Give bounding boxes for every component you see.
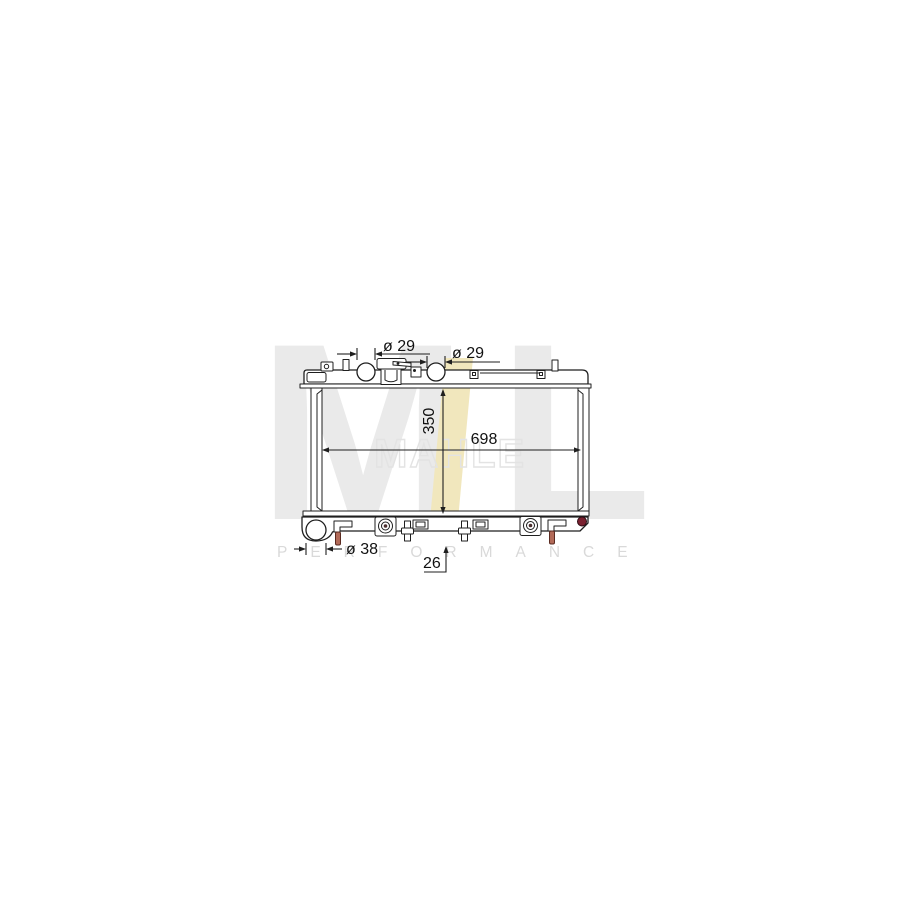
oil-cooler-fitting-1-center [384, 524, 388, 528]
bottom-flange [303, 511, 589, 516]
red-pin-right [550, 531, 555, 544]
filler-cap-lever-dot [397, 362, 400, 365]
dim-label-port-left: ø 29 [383, 338, 415, 355]
product-image: M L MAHLE PERFORMANCE [0, 0, 900, 900]
mounting-pin-top-left [343, 360, 349, 371]
hanging-pin-2-collar [459, 528, 471, 534]
watermark-wordmark: MAHLE [374, 432, 526, 476]
square-port-3 [537, 371, 545, 379]
top-tank-flange [300, 384, 591, 388]
inlet-port-left [357, 363, 375, 381]
square-port-1-dot [413, 369, 416, 372]
drain-plug [578, 517, 587, 526]
red-pin-left [336, 532, 341, 545]
square-port-1 [411, 367, 421, 377]
square-port-2 [470, 371, 478, 379]
dim-label-core-width: 698 [471, 431, 498, 448]
outlet-port [306, 520, 326, 540]
clip-bracket-2 [473, 520, 488, 529]
oil-cooler-fitting-2-center [529, 524, 533, 528]
radiator-technical-drawing: M L MAHLE PERFORMANCE [0, 0, 900, 900]
mounting-tab-left [321, 362, 333, 371]
watermark-tagline: PERFORMANCE [277, 544, 651, 561]
dim-label-core-height: 350 [421, 408, 438, 435]
mounting-pin-top-right [552, 360, 558, 371]
clip-bracket-1 [413, 520, 428, 529]
inlet-port-right [427, 363, 445, 381]
hanging-pin-1-collar [402, 528, 414, 534]
dim-label-bracket-offset: 26 [423, 555, 441, 572]
dim-label-bottom-port: ø 38 [346, 541, 378, 558]
dim-label-port-right: ø 29 [452, 345, 484, 362]
